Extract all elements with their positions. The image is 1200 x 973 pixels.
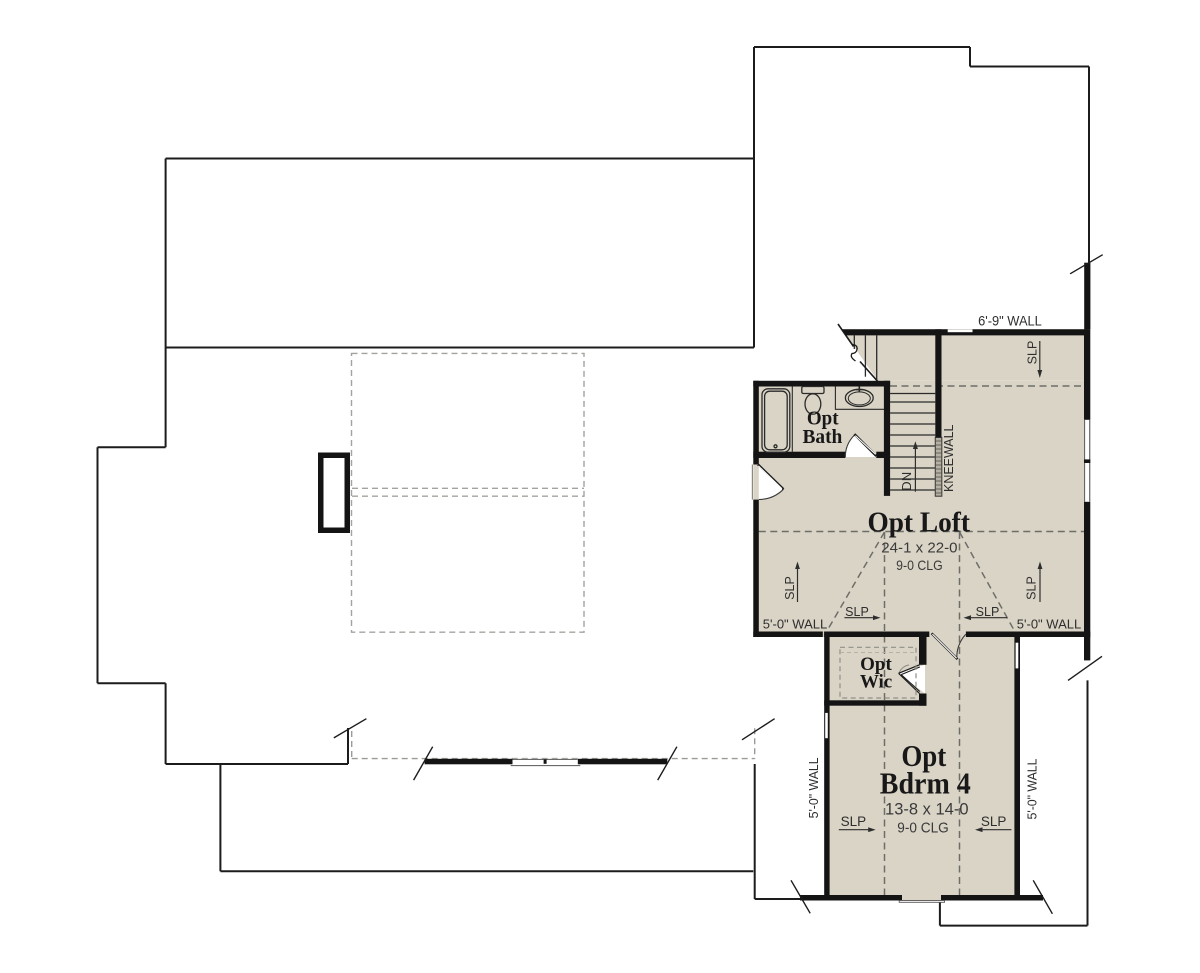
svg-text:SLP: SLP (1025, 341, 1039, 365)
svg-text:DN: DN (899, 472, 914, 491)
svg-text:13-8 x 14-0: 13-8 x 14-0 (885, 800, 969, 819)
svg-text:9-0 CLG: 9-0 CLG (896, 557, 943, 573)
svg-text:KNEEWALL: KNEEWALL (941, 425, 956, 493)
svg-text:5'-0" WALL: 5'-0" WALL (763, 617, 827, 632)
svg-text:SLP: SLP (845, 605, 869, 619)
svg-text:9-0 CLG: 9-0 CLG (897, 821, 949, 837)
svg-text:Opt Loft: Opt Loft (867, 506, 970, 538)
svg-text:5'-0" WALL: 5'-0" WALL (806, 757, 821, 818)
svg-text:24-1 x 22-0: 24-1 x 22-0 (881, 540, 957, 557)
svg-text:SLP: SLP (1025, 576, 1039, 600)
svg-text:SLP: SLP (841, 814, 867, 829)
svg-text:Bath: Bath (802, 426, 842, 448)
svg-text:SLP: SLP (976, 605, 1000, 619)
svg-text:5'-0" WALL: 5'-0" WALL (1025, 759, 1040, 820)
svg-text:SLP: SLP (981, 814, 1007, 829)
svg-text:5'-0" WALL: 5'-0" WALL (1017, 617, 1081, 632)
svg-text:Wic: Wic (860, 671, 892, 692)
svg-text:6'-9" WALL: 6'-9" WALL (978, 314, 1042, 329)
svg-text:Bdrm 4: Bdrm 4 (880, 766, 971, 801)
svg-text:SLP: SLP (783, 576, 797, 600)
